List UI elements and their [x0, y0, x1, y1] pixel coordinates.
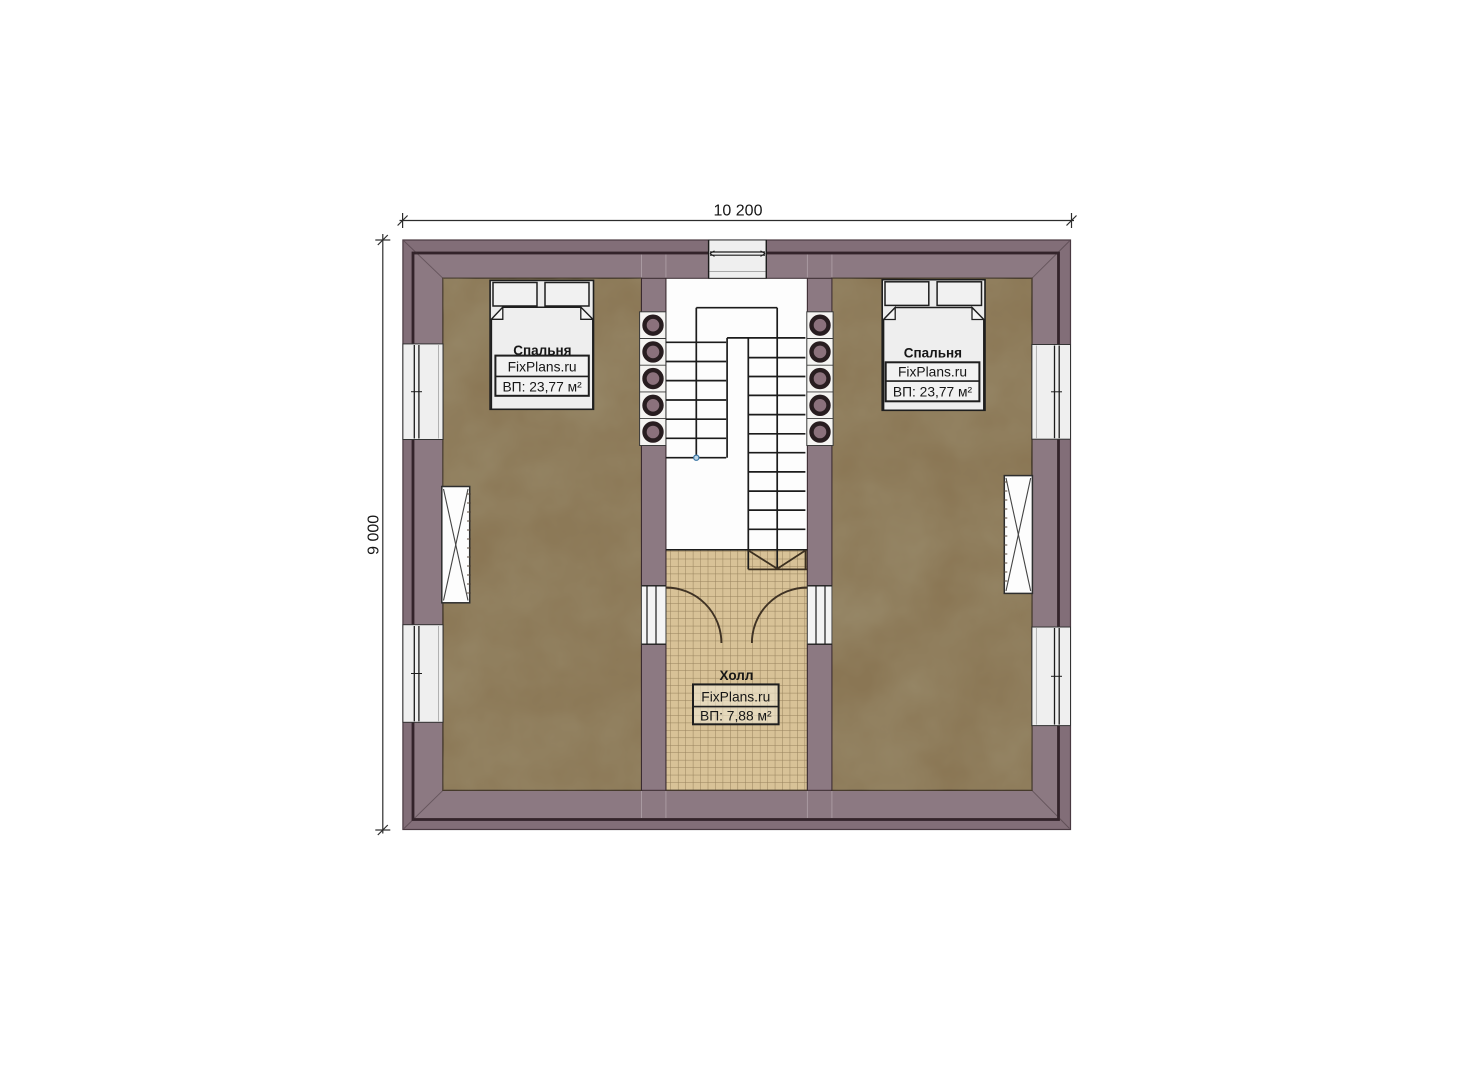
svg-text:Холл: Холл — [720, 668, 754, 683]
svg-text:ВП: 7,88 м²: ВП: 7,88 м² — [700, 709, 772, 724]
svg-text:ВП: 23,77 м²: ВП: 23,77 м² — [893, 384, 973, 399]
svg-text:10 200: 10 200 — [714, 203, 763, 220]
svg-text:9 000: 9 000 — [366, 515, 383, 555]
svg-text:FixPlans.ru: FixPlans.ru — [508, 359, 577, 374]
svg-text:FixPlans.ru: FixPlans.ru — [701, 689, 770, 704]
svg-text:Спальня: Спальня — [904, 345, 962, 360]
svg-text:ВП: 23,77 м²: ВП: 23,77 м² — [502, 380, 582, 395]
svg-text:FixPlans.ru: FixPlans.ru — [898, 364, 967, 379]
